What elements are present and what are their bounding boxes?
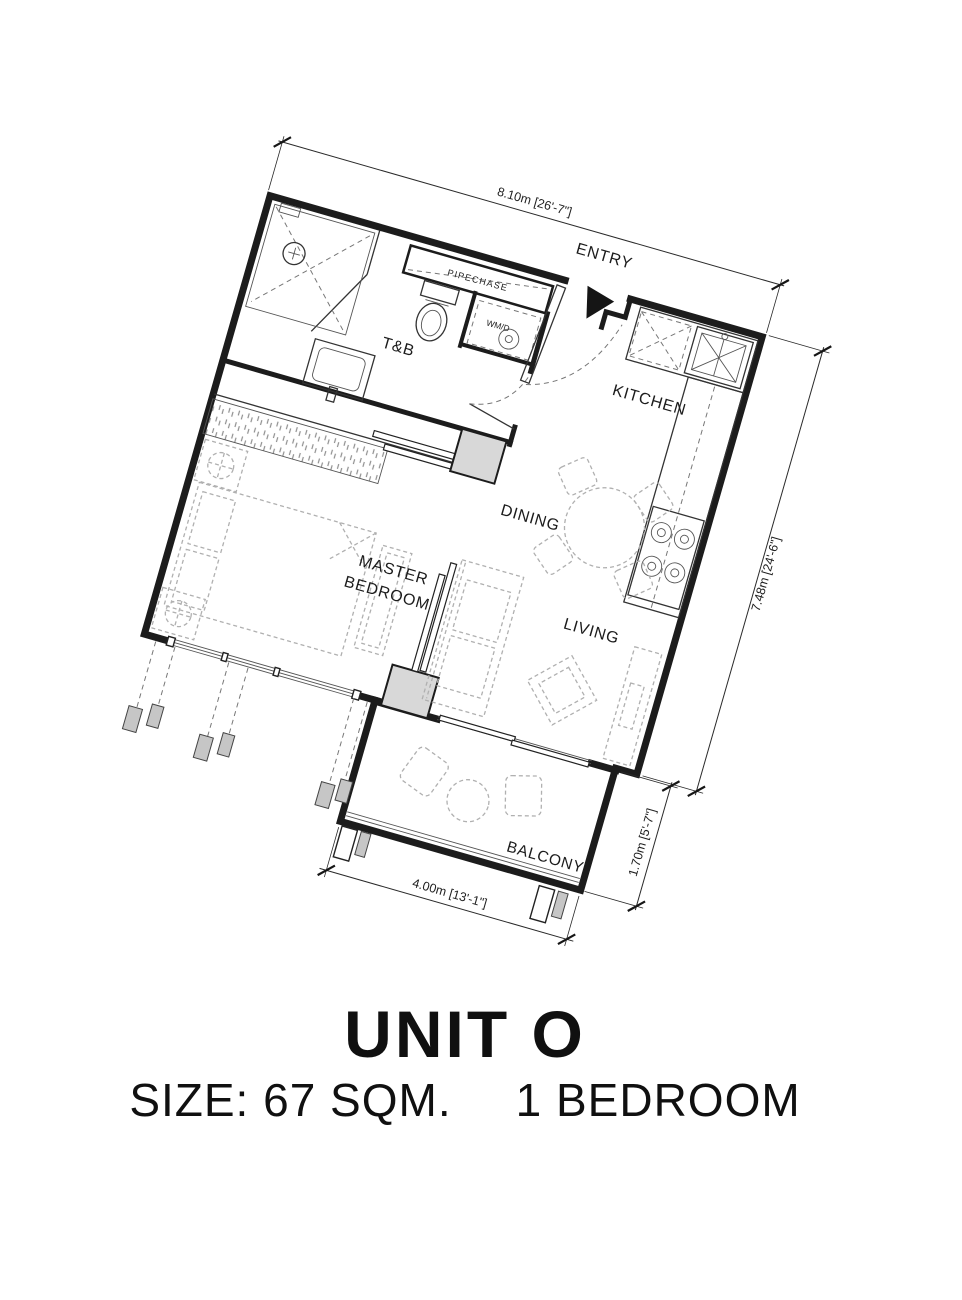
bed-icon [164,482,376,656]
unit-subtitle: SIZE: 67 SQM. 1 BEDROOM [0,1073,946,1127]
dimension-right-label: 7.48m [24'-6"] [749,535,784,613]
dining-chair-icon [532,533,575,576]
floor-plan-drawing: PIPECHASE WM/D T&B [0,0,962,985]
title-block: UNIT O SIZE: 67 SQM. 1 BEDROOM [0,1000,946,1127]
dimension-top: 8.10m [26'-7"] [262,122,792,335]
dining-label: DINING [499,502,562,535]
pillow [171,549,219,610]
wardrobe [203,385,472,506]
dining-chair-icon [632,481,675,524]
dining-area: DINING [487,438,684,607]
exterior-walls [110,196,763,897]
balcony-post [333,826,357,861]
balcony-chair-icon [505,775,542,816]
wmd-label: WM/D [485,318,510,334]
balcony-post [355,832,371,858]
pillow [188,492,236,553]
dining-chair-icon [557,456,598,496]
bathroom: PIPECHASE WM/D T&B [227,201,557,453]
living-label: LIVING [561,616,621,648]
entry-arrow-icon [579,286,617,325]
entry-label: ENTRY [574,241,634,273]
balcony-table-icon [442,775,494,827]
kitchen-label: KITCHEN [610,382,688,419]
unit-title: UNIT O [0,1000,946,1069]
bathroom-door [466,361,529,429]
living-area: LIVING [420,560,671,766]
coffee-table-icon [517,646,606,735]
entry-area: ENTRY [520,236,641,406]
size-label: SIZE: 67 SQM. [129,1073,451,1127]
nightstand-icon [194,439,248,492]
toilet-icon [409,281,459,346]
rotated-plan: PIPECHASE WM/D T&B [84,122,856,973]
stove-icon [628,506,704,609]
floor-plan-page: PIPECHASE WM/D T&B [0,0,962,1300]
hall-wall-lower [510,427,515,444]
nightstand-icon [151,587,205,640]
shower-glass-door [311,264,367,342]
balcony-railing [346,812,580,883]
master-bedroom: MASTER BEDROOM [148,385,473,700]
door-pocket-column [381,665,439,719]
balcony-post [530,886,555,923]
dimension-balcony-depth-label: 1.70m [5'-7"] [626,807,659,878]
exterior-column-markers [117,639,375,813]
bedroom-window [166,636,361,700]
bedroom-count-label: 1 BEDROOM [516,1073,801,1127]
tb-label: T&B [380,335,417,361]
balcony-chair-icon [398,745,451,799]
balcony-sliding-door [436,715,592,768]
fridge-icon [629,312,692,371]
